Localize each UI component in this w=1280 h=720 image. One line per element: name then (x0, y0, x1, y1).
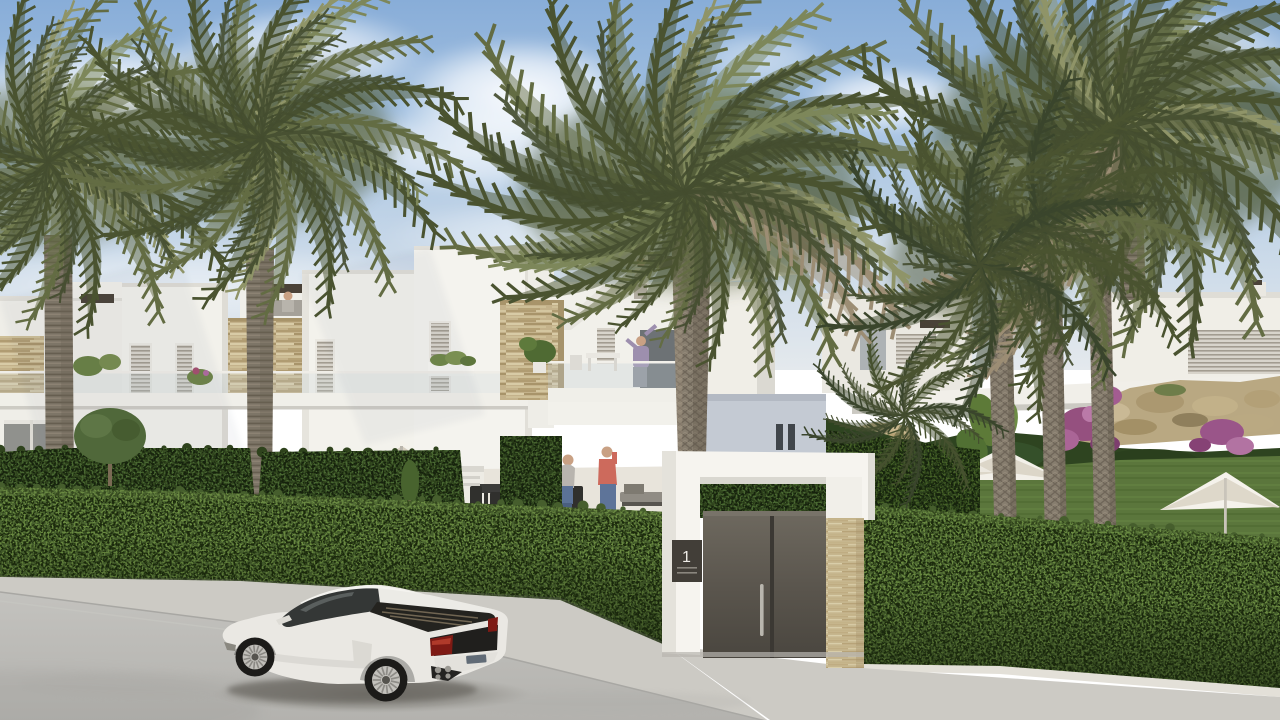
svg-text:1: 1 (682, 549, 691, 566)
